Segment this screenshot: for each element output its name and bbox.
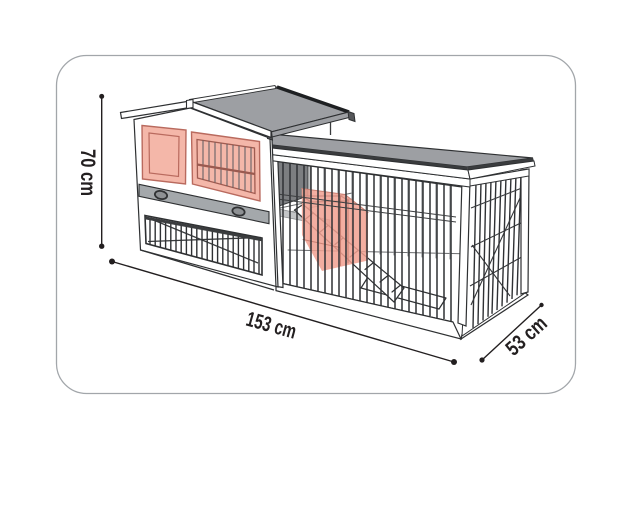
svg-text:70 cm: 70 cm	[76, 149, 99, 196]
